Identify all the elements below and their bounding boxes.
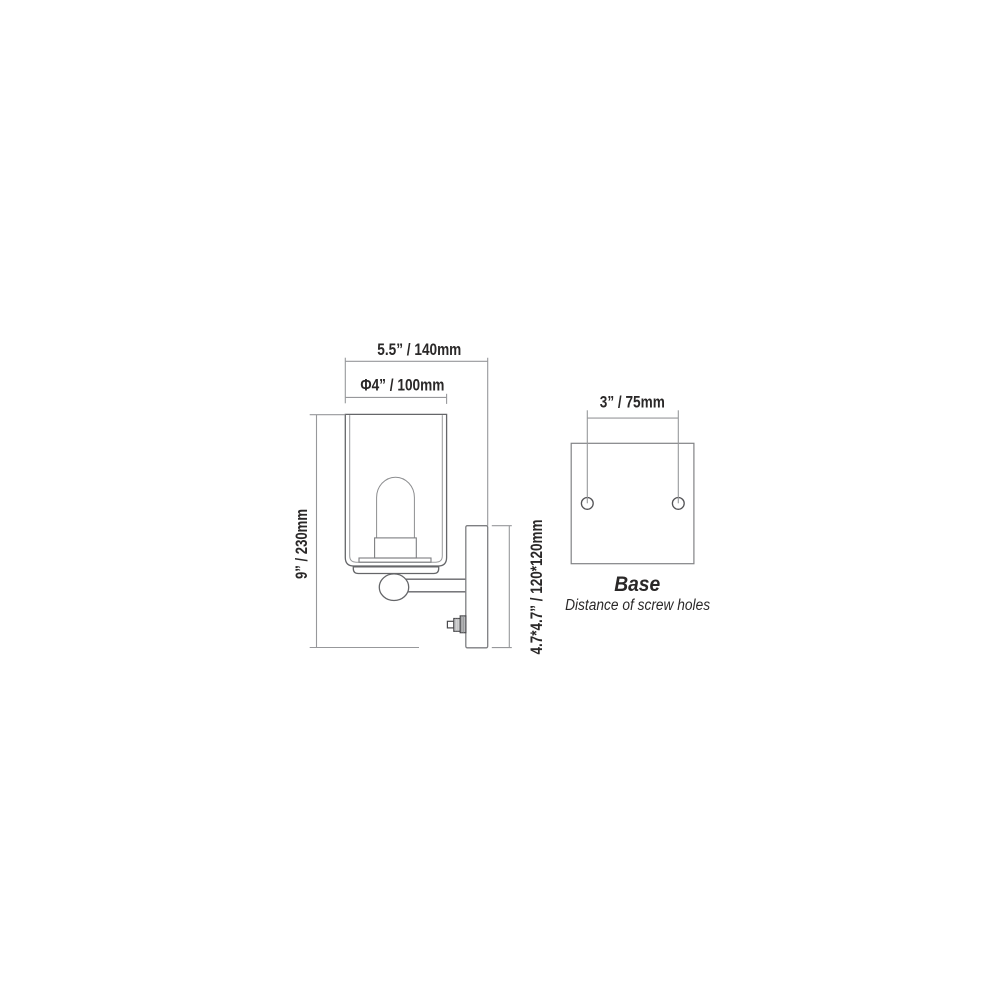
svg-text:Distance of screw holes: Distance of screw holes <box>565 597 710 614</box>
svg-text:4.7*4.7” / 120*120mm: 4.7*4.7” / 120*120mm <box>527 520 546 655</box>
svg-text:9” / 230mm: 9” / 230mm <box>292 509 311 579</box>
svg-text:3” / 75mm: 3” / 75mm <box>600 393 665 412</box>
svg-text:Φ4” / 100mm: Φ4” / 100mm <box>360 375 444 394</box>
svg-text:Base: Base <box>614 572 660 596</box>
svg-text:5.5” / 140mm: 5.5” / 140mm <box>377 340 461 359</box>
